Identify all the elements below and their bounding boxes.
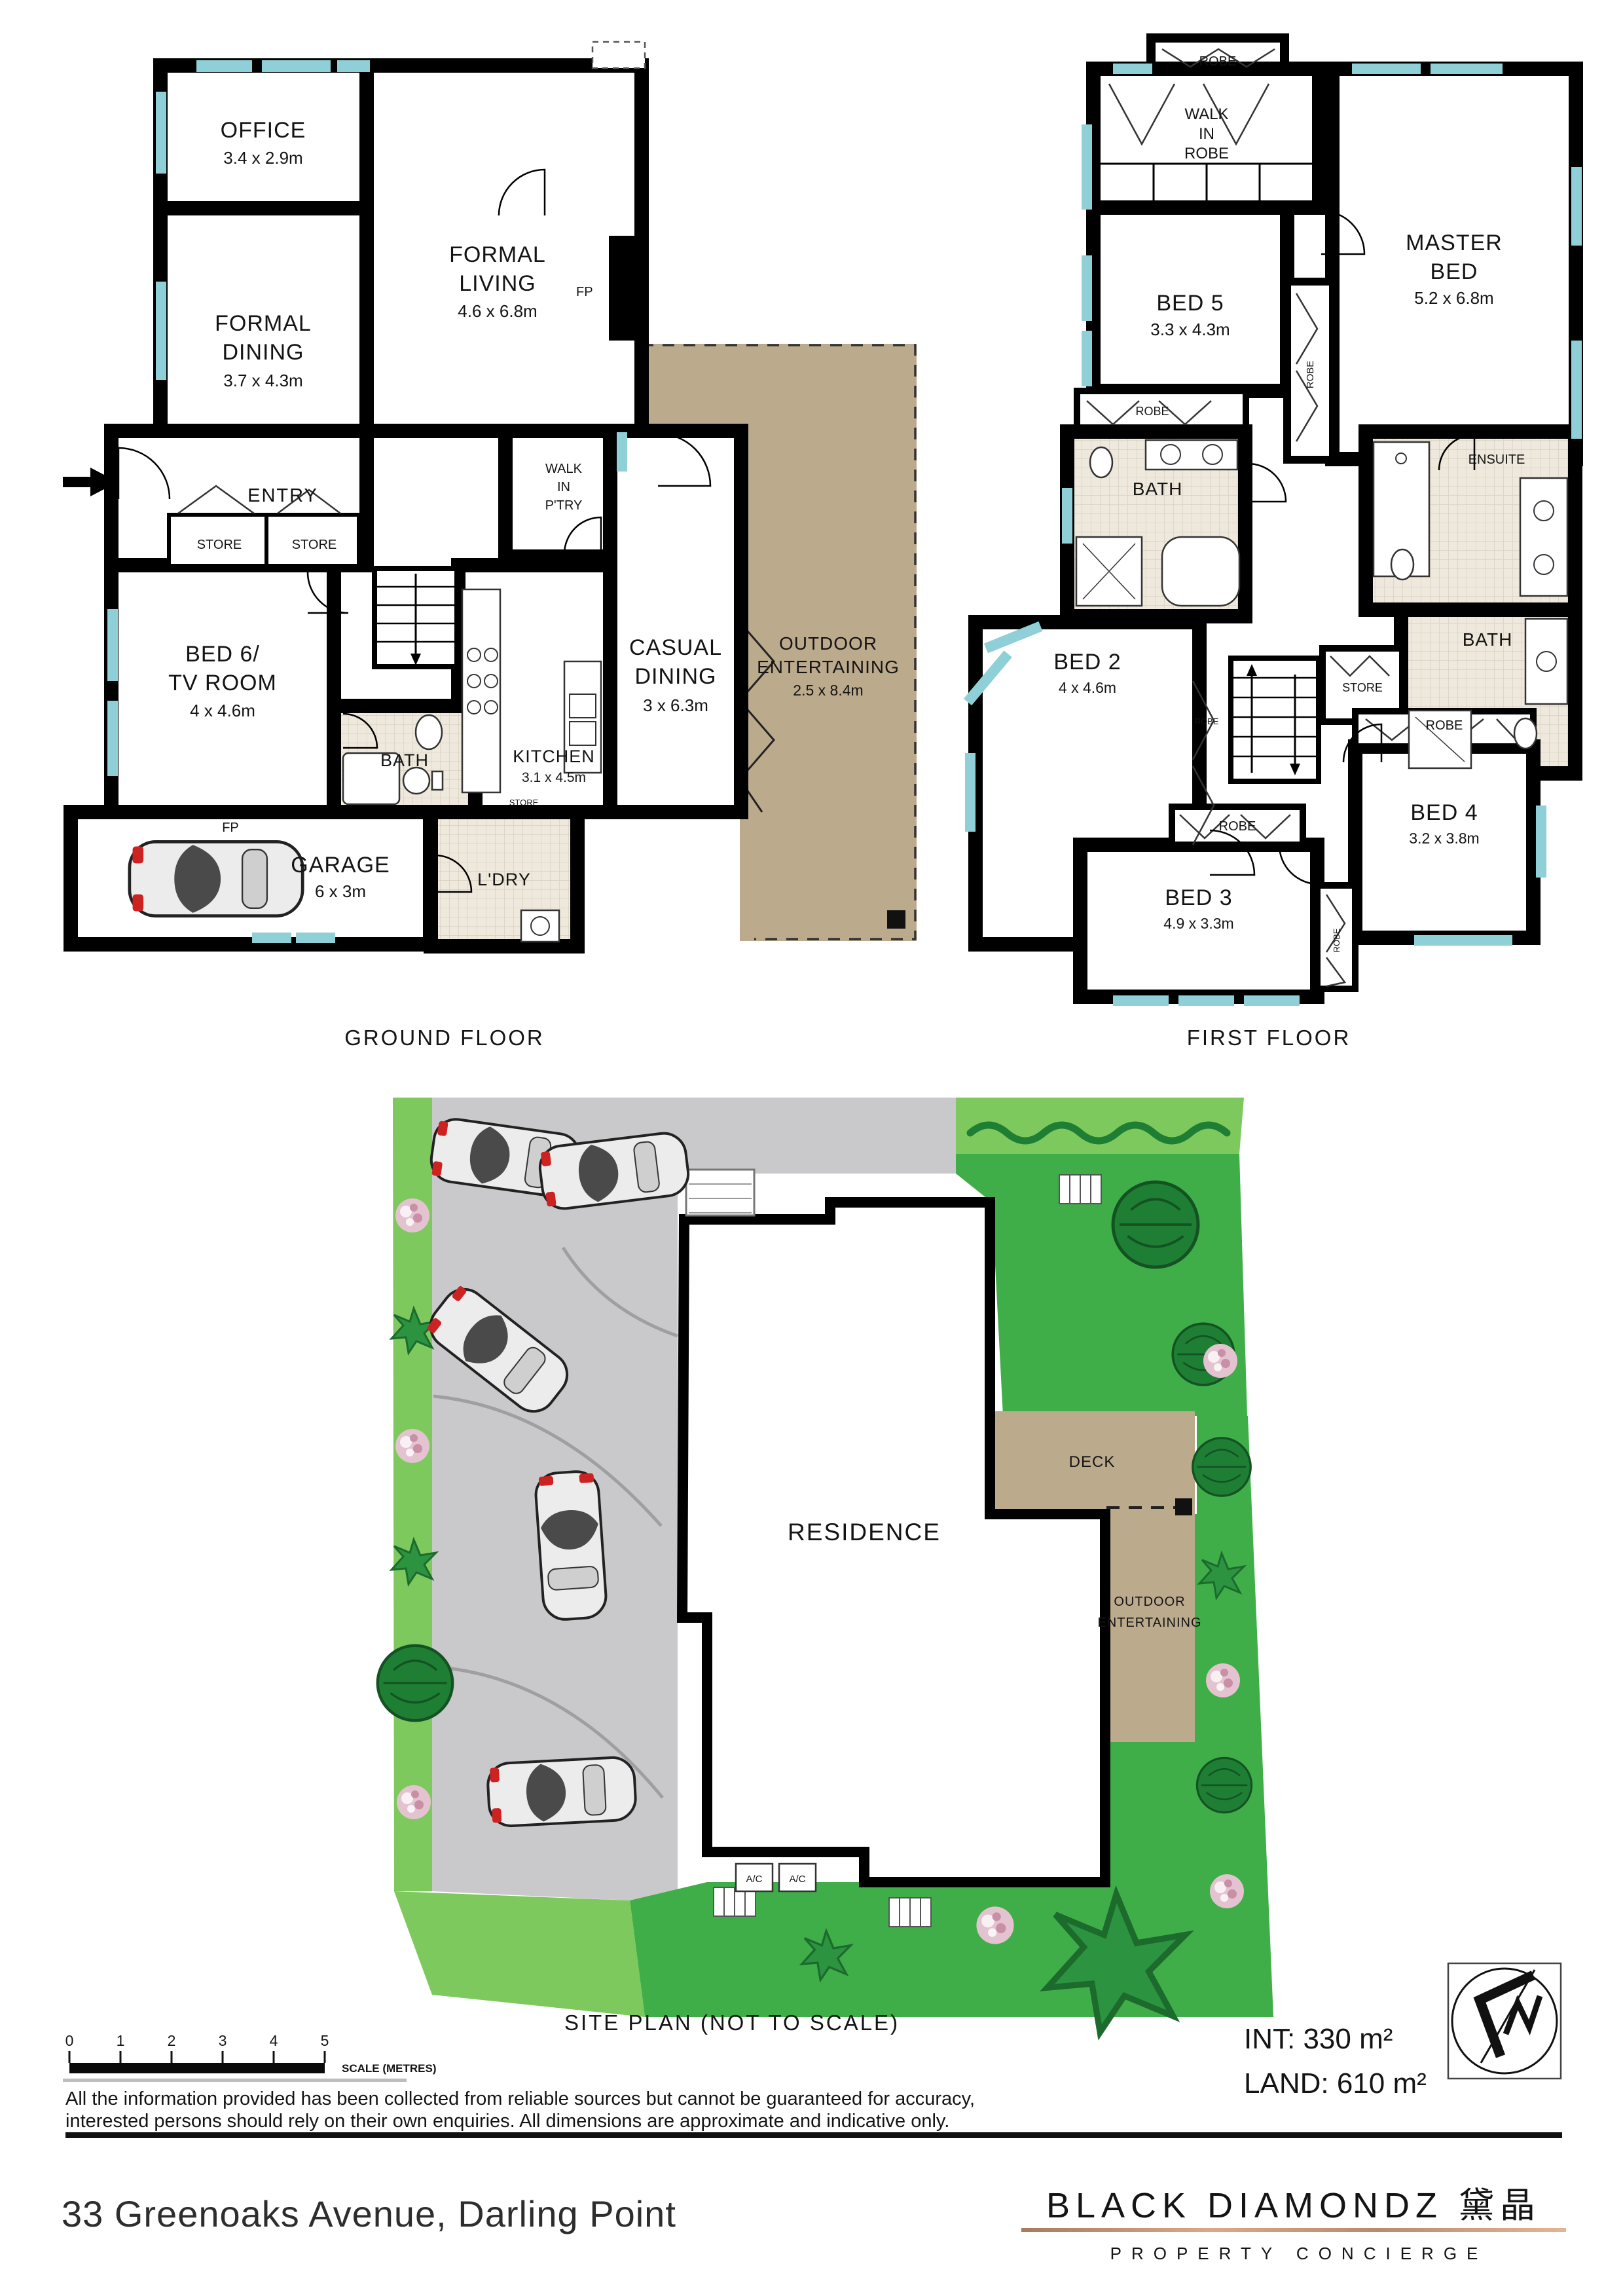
robe-bed2-label: ROBE: [1195, 716, 1219, 726]
bed5-dims: 3.3 x 4.3m: [1150, 320, 1230, 339]
laundry-label: L'DRY: [477, 870, 531, 889]
tree-icon: [1197, 1758, 1251, 1812]
flower-shrub-icon: [395, 1429, 429, 1463]
tree-icon: [378, 1646, 452, 1720]
robe-bed3-label: ROBE: [1219, 819, 1256, 834]
flower-shrub-icon: [395, 1198, 429, 1232]
outdoor-label-2: ENTERTAINING: [1097, 1616, 1201, 1630]
pantry-label-1: WALK: [545, 462, 583, 476]
casual-dining-label-2: DINING: [635, 664, 717, 689]
flower-shrub-icon: [1203, 1344, 1237, 1378]
pantry-label-2: IN: [557, 480, 570, 494]
bed4-label: BED 4: [1410, 800, 1478, 825]
fp-garage-label: FP: [222, 821, 239, 835]
site-plan: RESIDENCE DECK OUTDOOR ENTERTAINING A/C …: [378, 1098, 1273, 2035]
fireplace-garage: [196, 805, 268, 819]
master-label-1: MASTER: [1406, 231, 1503, 255]
bed3-label: BED 3: [1165, 885, 1232, 910]
bed3-dims: 4.9 x 3.3m: [1163, 915, 1233, 932]
flower-shrub-icon: [397, 1785, 431, 1819]
disclaimer-line-2: interested persons should rely on their …: [65, 2111, 949, 2132]
formal-living-label-2: LIVING: [459, 271, 536, 296]
robe-top-label: ROBE: [1199, 54, 1237, 69]
north-arrow-icon: [1448, 1963, 1561, 2079]
scale-tick-0: 0: [65, 2032, 74, 2049]
scale-tick-5: 5: [321, 2032, 329, 2049]
stairs-ground: [374, 568, 457, 667]
outdoor-ent-label-1: OUTDOOR: [779, 633, 877, 654]
bed4-dims: 3.2 x 3.8m: [1409, 830, 1479, 847]
formal-living-label-1: FORMAL: [449, 242, 546, 267]
car-icon: [130, 842, 302, 916]
bath-left-label: BATH: [1133, 479, 1183, 499]
bath-ground-label: BATH: [380, 750, 429, 770]
floorplan-page: RESIDENCE DECK OUTDOOR ENTERTAINING A/C …: [0, 0, 1623, 2296]
disclaimer-line-1: All the information provided has been co…: [65, 2088, 975, 2109]
master-dims: 5.2 x 6.8m: [1414, 288, 1493, 308]
bed6-label-1: BED 6/: [185, 642, 260, 667]
formal-dining-label-1: FORMAL: [215, 311, 312, 336]
master-label-2: BED: [1431, 259, 1478, 284]
ac-label-2: A/C: [789, 1874, 805, 1885]
address-title: 33 Greenoaks Avenue, Darling Point: [62, 2193, 676, 2234]
flower-shrub-icon: [976, 1906, 1013, 1944]
fireplace-chimney: [609, 236, 642, 341]
bed6-dims: 4 x 4.6m: [190, 701, 255, 720]
formal-living-dims: 4.6 x 6.8m: [458, 301, 537, 321]
first-floor-title: FIRST FLOOR: [1187, 1026, 1351, 1050]
casual-dining-dims: 3 x 6.3m: [643, 695, 708, 715]
scale-tick-4: 4: [270, 2032, 278, 2049]
kitchen-dims: 3.1 x 4.5m: [522, 770, 586, 785]
scale-label: SCALE (METRES): [342, 2062, 437, 2075]
store-small-label: STORE: [509, 798, 539, 807]
brand-name: BLACK DIAMONDZ 黛晶: [1046, 2186, 1541, 2225]
store-1-label: STORE: [197, 538, 242, 552]
robe-bed3-side-label: ROBE: [1332, 928, 1341, 952]
divider-rule: [65, 2132, 1562, 2138]
brand-tagline: PROPERTY CONCIERGE: [1110, 2244, 1488, 2263]
scale-bar: 0 1 2 3 4 5 SCALE (METRES): [63, 2032, 437, 2082]
robe-bed5-label: ROBE: [1135, 405, 1169, 418]
ground-floor-title: GROUND FLOOR: [344, 1026, 545, 1050]
formal-dining-label-2: DINING: [223, 340, 304, 365]
pantry-label-3: P'TRY: [545, 498, 583, 513]
deck-label: DECK: [1069, 1453, 1116, 1471]
flower-shrub-icon: [1206, 1663, 1240, 1697]
site-plan-title: SITE PLAN (NOT TO SCALE): [564, 2010, 900, 2035]
ensuite-label: ENSUITE: [1468, 453, 1525, 467]
bed5-label: BED 5: [1156, 291, 1224, 316]
bed2-label: BED 2: [1053, 650, 1121, 675]
scale-tick-3: 3: [219, 2032, 227, 2049]
robe-bed4-label: ROBE: [1426, 718, 1463, 733]
tree-icon: [1193, 1438, 1250, 1496]
room-casual-dining: [610, 431, 741, 812]
garage-dims: 6 x 3m: [315, 881, 366, 901]
car-icon: [534, 1470, 607, 1621]
entry-label: ENTRY: [247, 485, 318, 506]
kitchen-label: KITCHEN: [513, 747, 595, 766]
bath-right-label: BATH: [1463, 629, 1513, 650]
bed6-label-2: TV ROOM: [168, 671, 277, 695]
scale-tick-2: 2: [168, 2032, 176, 2049]
garage-label: GARAGE: [291, 853, 390, 878]
garage-door-icon: [686, 1170, 754, 1215]
stairs-first: [1231, 658, 1319, 781]
outdoor-ent-label-2: ENTERTAINING: [757, 657, 900, 677]
store-2-label: STORE: [292, 538, 337, 552]
formal-dining-dims: 3.7 x 4.3m: [223, 371, 302, 390]
casual-dining-label-1: CASUAL: [629, 635, 722, 660]
ground-floor-plan: OFFICE 3.4 x 2.9m FORMAL LIVING 4.6 x 6.…: [63, 42, 917, 1050]
steps-icon: [1059, 1175, 1101, 1204]
bed2-dims: 4 x 4.6m: [1059, 679, 1116, 696]
flower-shrub-icon: [1210, 1874, 1244, 1908]
car-icon: [487, 1756, 637, 1827]
lawn-southwest: [394, 1891, 645, 2017]
brand-logo: BLACK DIAMONDZ 黛晶 PROPERTY CONCIERGE: [1021, 2186, 1566, 2263]
outdoor-ent-dims: 2.5 x 8.4m: [793, 682, 863, 699]
wir-label-3: ROBE: [1184, 145, 1229, 162]
steps-icon: [889, 1898, 931, 1927]
store-first-label: STORE: [1342, 681, 1383, 694]
outdoor-label-1: OUTDOOR: [1114, 1595, 1185, 1609]
residence-label: RESIDENCE: [788, 1519, 941, 1546]
area-int: INT: 330 m²: [1244, 2023, 1393, 2055]
wir-label-2: IN: [1199, 125, 1214, 143]
scale-tick-1: 1: [117, 2032, 125, 2049]
first-floor-plan: ROBE WALK IN ROBE MASTER BED 5.2 x 6.8m …: [964, 38, 1582, 1050]
robe-master-label: ROBE: [1305, 361, 1316, 389]
office-label: OFFICE: [221, 118, 306, 143]
ac-label-1: A/C: [746, 1874, 762, 1885]
wir-label-1: WALK: [1184, 105, 1228, 123]
area-land: LAND: 610 m²: [1244, 2067, 1427, 2100]
tree-icon: [1113, 1182, 1198, 1267]
office-dims: 3.4 x 2.9m: [223, 148, 302, 168]
fp-living-label: FP: [576, 285, 593, 299]
